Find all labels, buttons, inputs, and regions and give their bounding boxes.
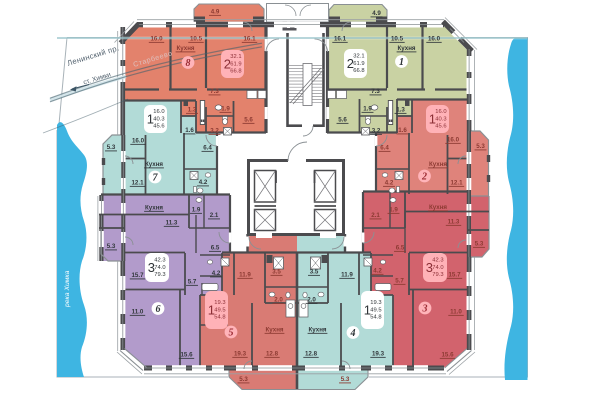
svg-text:1.6: 1.6: [185, 127, 194, 134]
svg-text:4.2: 4.2: [385, 180, 394, 187]
svg-text:5.3: 5.3: [476, 143, 485, 150]
svg-text:15.7: 15.7: [448, 272, 461, 279]
svg-text:2.0: 2.0: [274, 297, 283, 304]
svg-text:32.1: 32.1: [353, 54, 364, 60]
svg-text:3.2: 3.2: [210, 128, 219, 135]
svg-text:Кухня: Кухня: [429, 161, 447, 168]
svg-text:Кухня: Кухня: [176, 45, 194, 52]
svg-text:16.0: 16.0: [435, 109, 446, 115]
svg-text:2: 2: [421, 172, 427, 183]
svg-text:42.3: 42.3: [154, 258, 165, 264]
svg-text:Кухня: Кухня: [308, 327, 326, 334]
svg-text:11.3: 11.3: [448, 219, 460, 226]
svg-text:16.1: 16.1: [334, 36, 347, 43]
svg-text:45.6: 45.6: [435, 123, 446, 129]
svg-text:1: 1: [399, 57, 404, 68]
svg-text:3.5: 3.5: [310, 269, 319, 276]
svg-text:Кухня: Кухня: [145, 161, 163, 168]
svg-text:Кухня: Кухня: [397, 45, 415, 52]
svg-text:10.5: 10.5: [190, 36, 203, 43]
svg-text:5.6: 5.6: [244, 117, 253, 124]
svg-text:7.3: 7.3: [210, 88, 219, 95]
svg-text:74.0: 74.0: [154, 265, 165, 271]
svg-text:5.7: 5.7: [395, 278, 404, 285]
svg-text:11.0: 11.0: [450, 309, 462, 316]
svg-text:2.0: 2.0: [307, 297, 316, 304]
svg-text:8: 8: [186, 58, 191, 69]
svg-text:1.9: 1.9: [221, 106, 230, 113]
svg-text:1.9: 1.9: [389, 207, 398, 214]
svg-text:19.3: 19.3: [234, 351, 247, 358]
svg-text:5.3: 5.3: [239, 376, 248, 383]
svg-text:49.5: 49.5: [214, 307, 225, 313]
svg-text:15.6: 15.6: [180, 352, 193, 359]
svg-text:11.9: 11.9: [239, 272, 251, 279]
svg-text:3.2: 3.2: [372, 128, 381, 135]
svg-text:6.4: 6.4: [380, 145, 389, 152]
svg-text:12.8: 12.8: [266, 351, 279, 358]
svg-text:Кухня: Кухня: [145, 205, 163, 212]
svg-text:7.3: 7.3: [371, 88, 380, 95]
svg-text:79.3: 79.3: [432, 272, 443, 278]
svg-text:2.1: 2.1: [371, 212, 380, 219]
svg-text:15.6: 15.6: [441, 352, 454, 359]
svg-text:66.8: 66.8: [230, 68, 241, 74]
svg-text:4.9: 4.9: [372, 10, 381, 17]
svg-text:5.3: 5.3: [107, 243, 116, 250]
svg-text:4: 4: [350, 328, 356, 339]
svg-text:11.3: 11.3: [166, 220, 178, 227]
svg-text:12.1: 12.1: [450, 180, 463, 187]
svg-text:Кухня: Кухня: [265, 327, 283, 334]
svg-text:1.6: 1.6: [398, 127, 407, 134]
svg-text:16.0: 16.0: [132, 138, 145, 145]
svg-text:5.3: 5.3: [341, 376, 350, 383]
svg-text:42.3: 42.3: [432, 258, 443, 264]
svg-text:4.9: 4.9: [211, 9, 220, 16]
svg-text:6.5: 6.5: [211, 245, 220, 252]
svg-text:12.8: 12.8: [305, 351, 318, 358]
svg-text:5.3: 5.3: [107, 144, 116, 151]
svg-text:5.7: 5.7: [188, 279, 197, 286]
svg-text:74.0: 74.0: [432, 265, 443, 271]
svg-text:1.3: 1.3: [188, 107, 197, 114]
svg-text:40.3: 40.3: [153, 116, 164, 122]
svg-text:16.1: 16.1: [243, 36, 256, 43]
svg-text:10.5: 10.5: [391, 36, 404, 43]
svg-text:6: 6: [156, 304, 161, 315]
svg-text:2.1: 2.1: [210, 212, 219, 219]
svg-text:16.0: 16.0: [428, 36, 441, 43]
svg-text:4.2: 4.2: [212, 270, 221, 277]
svg-text:Кухня: Кухня: [429, 204, 447, 211]
svg-text:6.4: 6.4: [203, 145, 212, 152]
svg-text:32.1: 32.1: [230, 54, 241, 60]
svg-text:1.9: 1.9: [192, 207, 201, 214]
svg-text:6.5: 6.5: [396, 245, 405, 252]
svg-text:54.8: 54.8: [370, 314, 381, 320]
svg-text:3: 3: [422, 304, 428, 315]
svg-text:5: 5: [229, 328, 234, 339]
svg-text:4.2: 4.2: [199, 179, 208, 186]
svg-text:1.3: 1.3: [396, 107, 405, 114]
svg-text:66.8: 66.8: [353, 68, 364, 74]
svg-text:1.9: 1.9: [363, 106, 372, 113]
svg-text:19.3: 19.3: [370, 300, 381, 306]
svg-text:3.5: 3.5: [272, 269, 281, 276]
svg-text:16.0: 16.0: [153, 109, 164, 115]
svg-text:79.3: 79.3: [154, 272, 165, 278]
svg-text:40.3: 40.3: [435, 116, 446, 122]
svg-text:54.8: 54.8: [214, 314, 225, 320]
svg-text:4.2: 4.2: [373, 268, 382, 275]
svg-text:45.6: 45.6: [153, 123, 164, 129]
svg-text:49.5: 49.5: [370, 307, 381, 313]
svg-text:19.3: 19.3: [214, 300, 225, 306]
svg-text:19.3: 19.3: [372, 351, 385, 358]
svg-text:61.9: 61.9: [353, 61, 364, 67]
svg-text:река Химка: река Химка: [64, 270, 71, 308]
svg-text:15.7: 15.7: [131, 272, 144, 279]
svg-text:11.0: 11.0: [132, 309, 144, 316]
svg-text:5.3: 5.3: [475, 241, 484, 248]
svg-text:5.6: 5.6: [338, 117, 347, 124]
svg-text:16.0: 16.0: [150, 36, 163, 43]
svg-text:11.9: 11.9: [341, 272, 353, 279]
svg-text:16.0: 16.0: [447, 137, 460, 144]
svg-text:12.1: 12.1: [131, 180, 144, 187]
svg-text:61.9: 61.9: [230, 61, 241, 67]
